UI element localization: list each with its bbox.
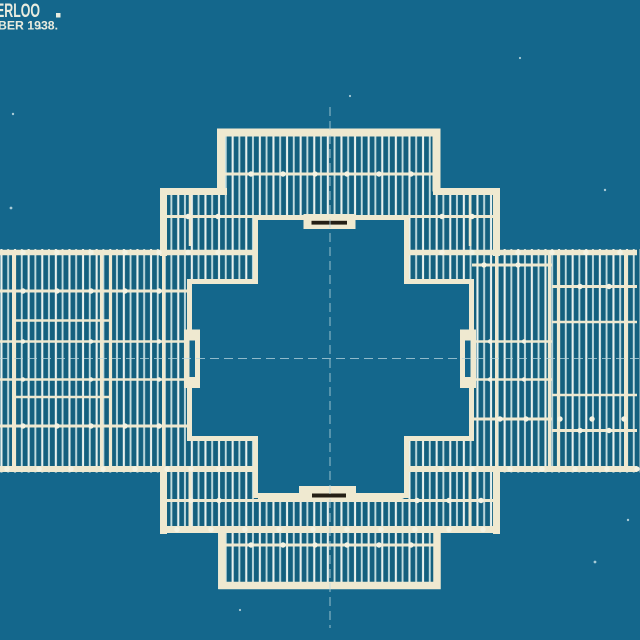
svg-text:ERLOO: ERLOO [0, 1, 40, 22]
svg-text:BER 1938.: BER 1938. [0, 21, 58, 33]
